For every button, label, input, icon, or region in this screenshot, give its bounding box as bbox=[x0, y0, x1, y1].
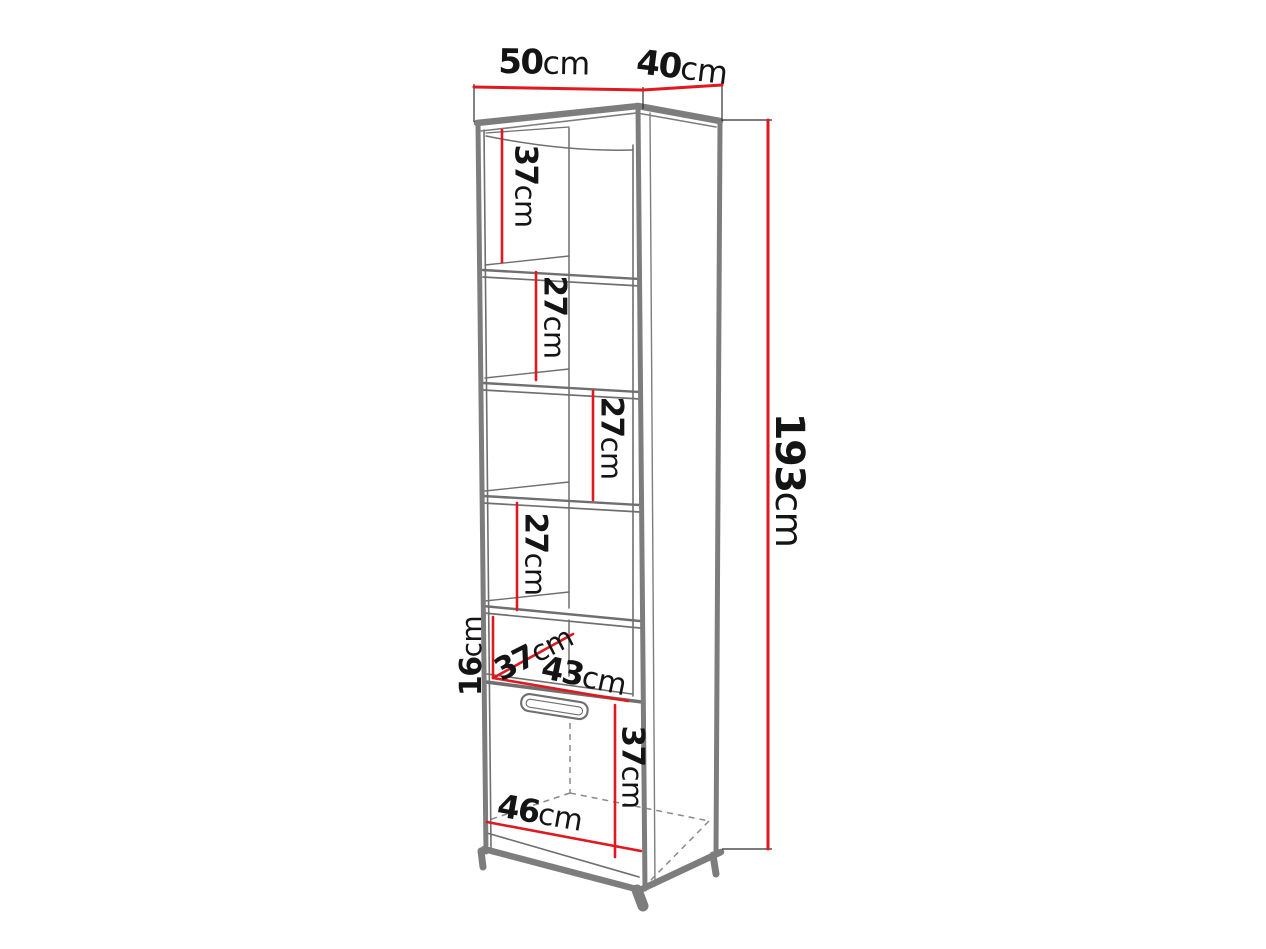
dim-value: 193 bbox=[766, 413, 812, 492]
dim-unit: cm bbox=[455, 616, 488, 658]
dim-value: 50 bbox=[498, 42, 543, 83]
cabinet-interior bbox=[484, 127, 633, 848]
dim-value: 37 bbox=[508, 144, 544, 184]
dim-value: 40 bbox=[634, 42, 683, 87]
shelf3-top-fan bbox=[485, 482, 569, 491]
right-back-edge bbox=[716, 122, 720, 855]
dim-label-total-height: 193cm bbox=[769, 413, 809, 548]
dim-label-compartment-3: 27cm bbox=[596, 396, 627, 479]
diagram-canvas: 50cm 40cm 193cm 37cm 27cm 27cm 27cm 16cm… bbox=[0, 0, 1266, 949]
top-panel-back-fan bbox=[486, 127, 569, 133]
dim-value: 27 bbox=[594, 396, 630, 436]
dim-label-top-width: 50cm bbox=[498, 45, 590, 81]
dim-label-door-height: 37cm bbox=[617, 725, 648, 808]
bottom-side-band bbox=[640, 852, 721, 890]
dim-value: 37 bbox=[615, 725, 651, 765]
dim-label-compartment-4: 27cm bbox=[520, 512, 551, 595]
drawer-handle bbox=[520, 693, 589, 720]
shelf4-front-top bbox=[483, 606, 640, 621]
dim-value: 46 bbox=[494, 786, 541, 831]
side-front-thin-edge bbox=[650, 113, 655, 886]
shelf2-top-fan bbox=[485, 369, 569, 378]
dim-label-niche-height: 16cm bbox=[457, 616, 487, 696]
dim-value: 16 bbox=[454, 657, 489, 696]
left-foot bbox=[481, 851, 483, 867]
side-corner-foot bbox=[713, 855, 716, 874]
dim-unit: cm bbox=[767, 492, 811, 548]
dim-unit: cm bbox=[542, 46, 590, 83]
dim-unit: cm bbox=[535, 797, 585, 839]
front-corner-foot bbox=[637, 890, 643, 906]
dim-unit: cm bbox=[509, 185, 543, 228]
dim-unit: cm bbox=[519, 553, 553, 596]
dim-unit: cm bbox=[678, 51, 729, 92]
dim-value: 27 bbox=[537, 275, 573, 315]
shelf1-top-fan bbox=[485, 256, 569, 265]
dim-unit: cm bbox=[595, 437, 629, 480]
dim-value: 27 bbox=[518, 512, 554, 552]
dim-unit: cm bbox=[616, 766, 650, 809]
dim-unit: cm bbox=[538, 316, 572, 359]
dim-label-compartment-2: 27cm bbox=[539, 275, 570, 358]
dim-label-compartment-1: 37cm bbox=[510, 144, 541, 227]
